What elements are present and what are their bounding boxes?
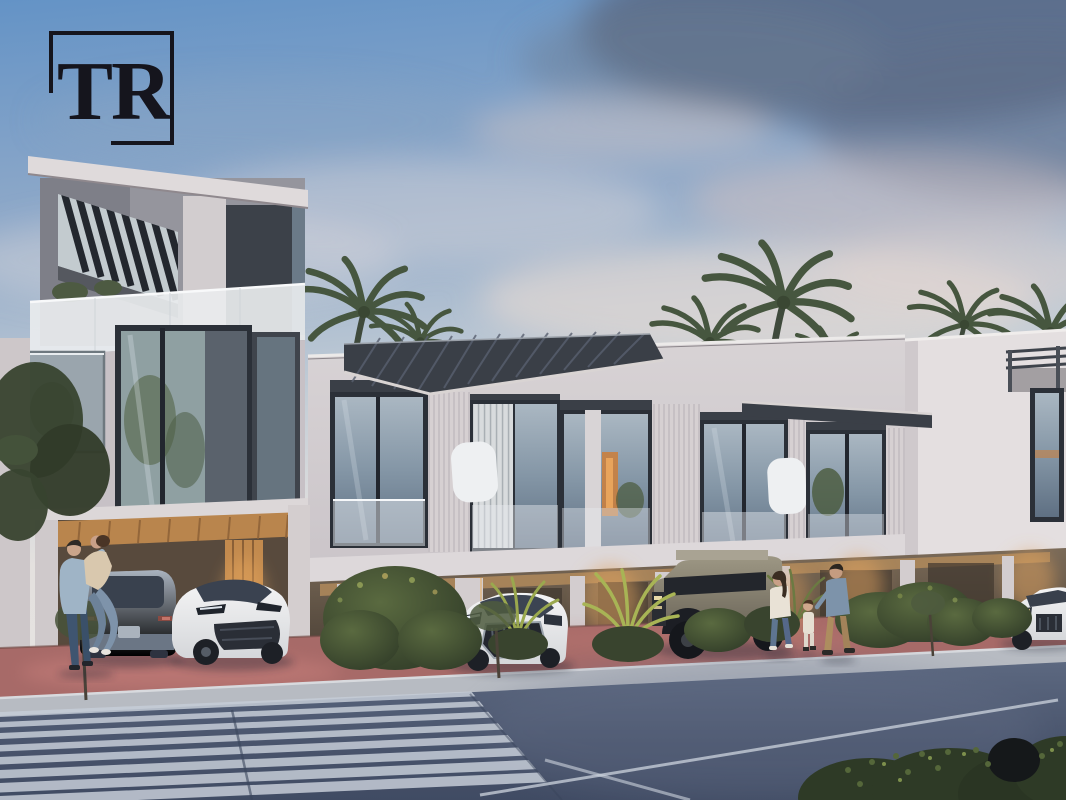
tr-logo: TR — [49, 31, 174, 143]
logo-text: TR — [57, 45, 173, 138]
privacy-panel — [767, 457, 808, 515]
window-bay — [560, 400, 652, 552]
car-crossover-white — [170, 580, 294, 671]
bush — [972, 598, 1032, 638]
side-window — [252, 332, 300, 512]
bush — [684, 608, 752, 652]
pier — [652, 404, 700, 554]
privacy-panel — [450, 440, 499, 503]
dark-figure — [988, 738, 1040, 782]
render-image: TR — [0, 0, 1066, 800]
window-bay — [330, 380, 428, 548]
end-unit-window — [1030, 388, 1064, 522]
picture-window — [115, 325, 252, 512]
terrace-plant — [94, 280, 122, 296]
